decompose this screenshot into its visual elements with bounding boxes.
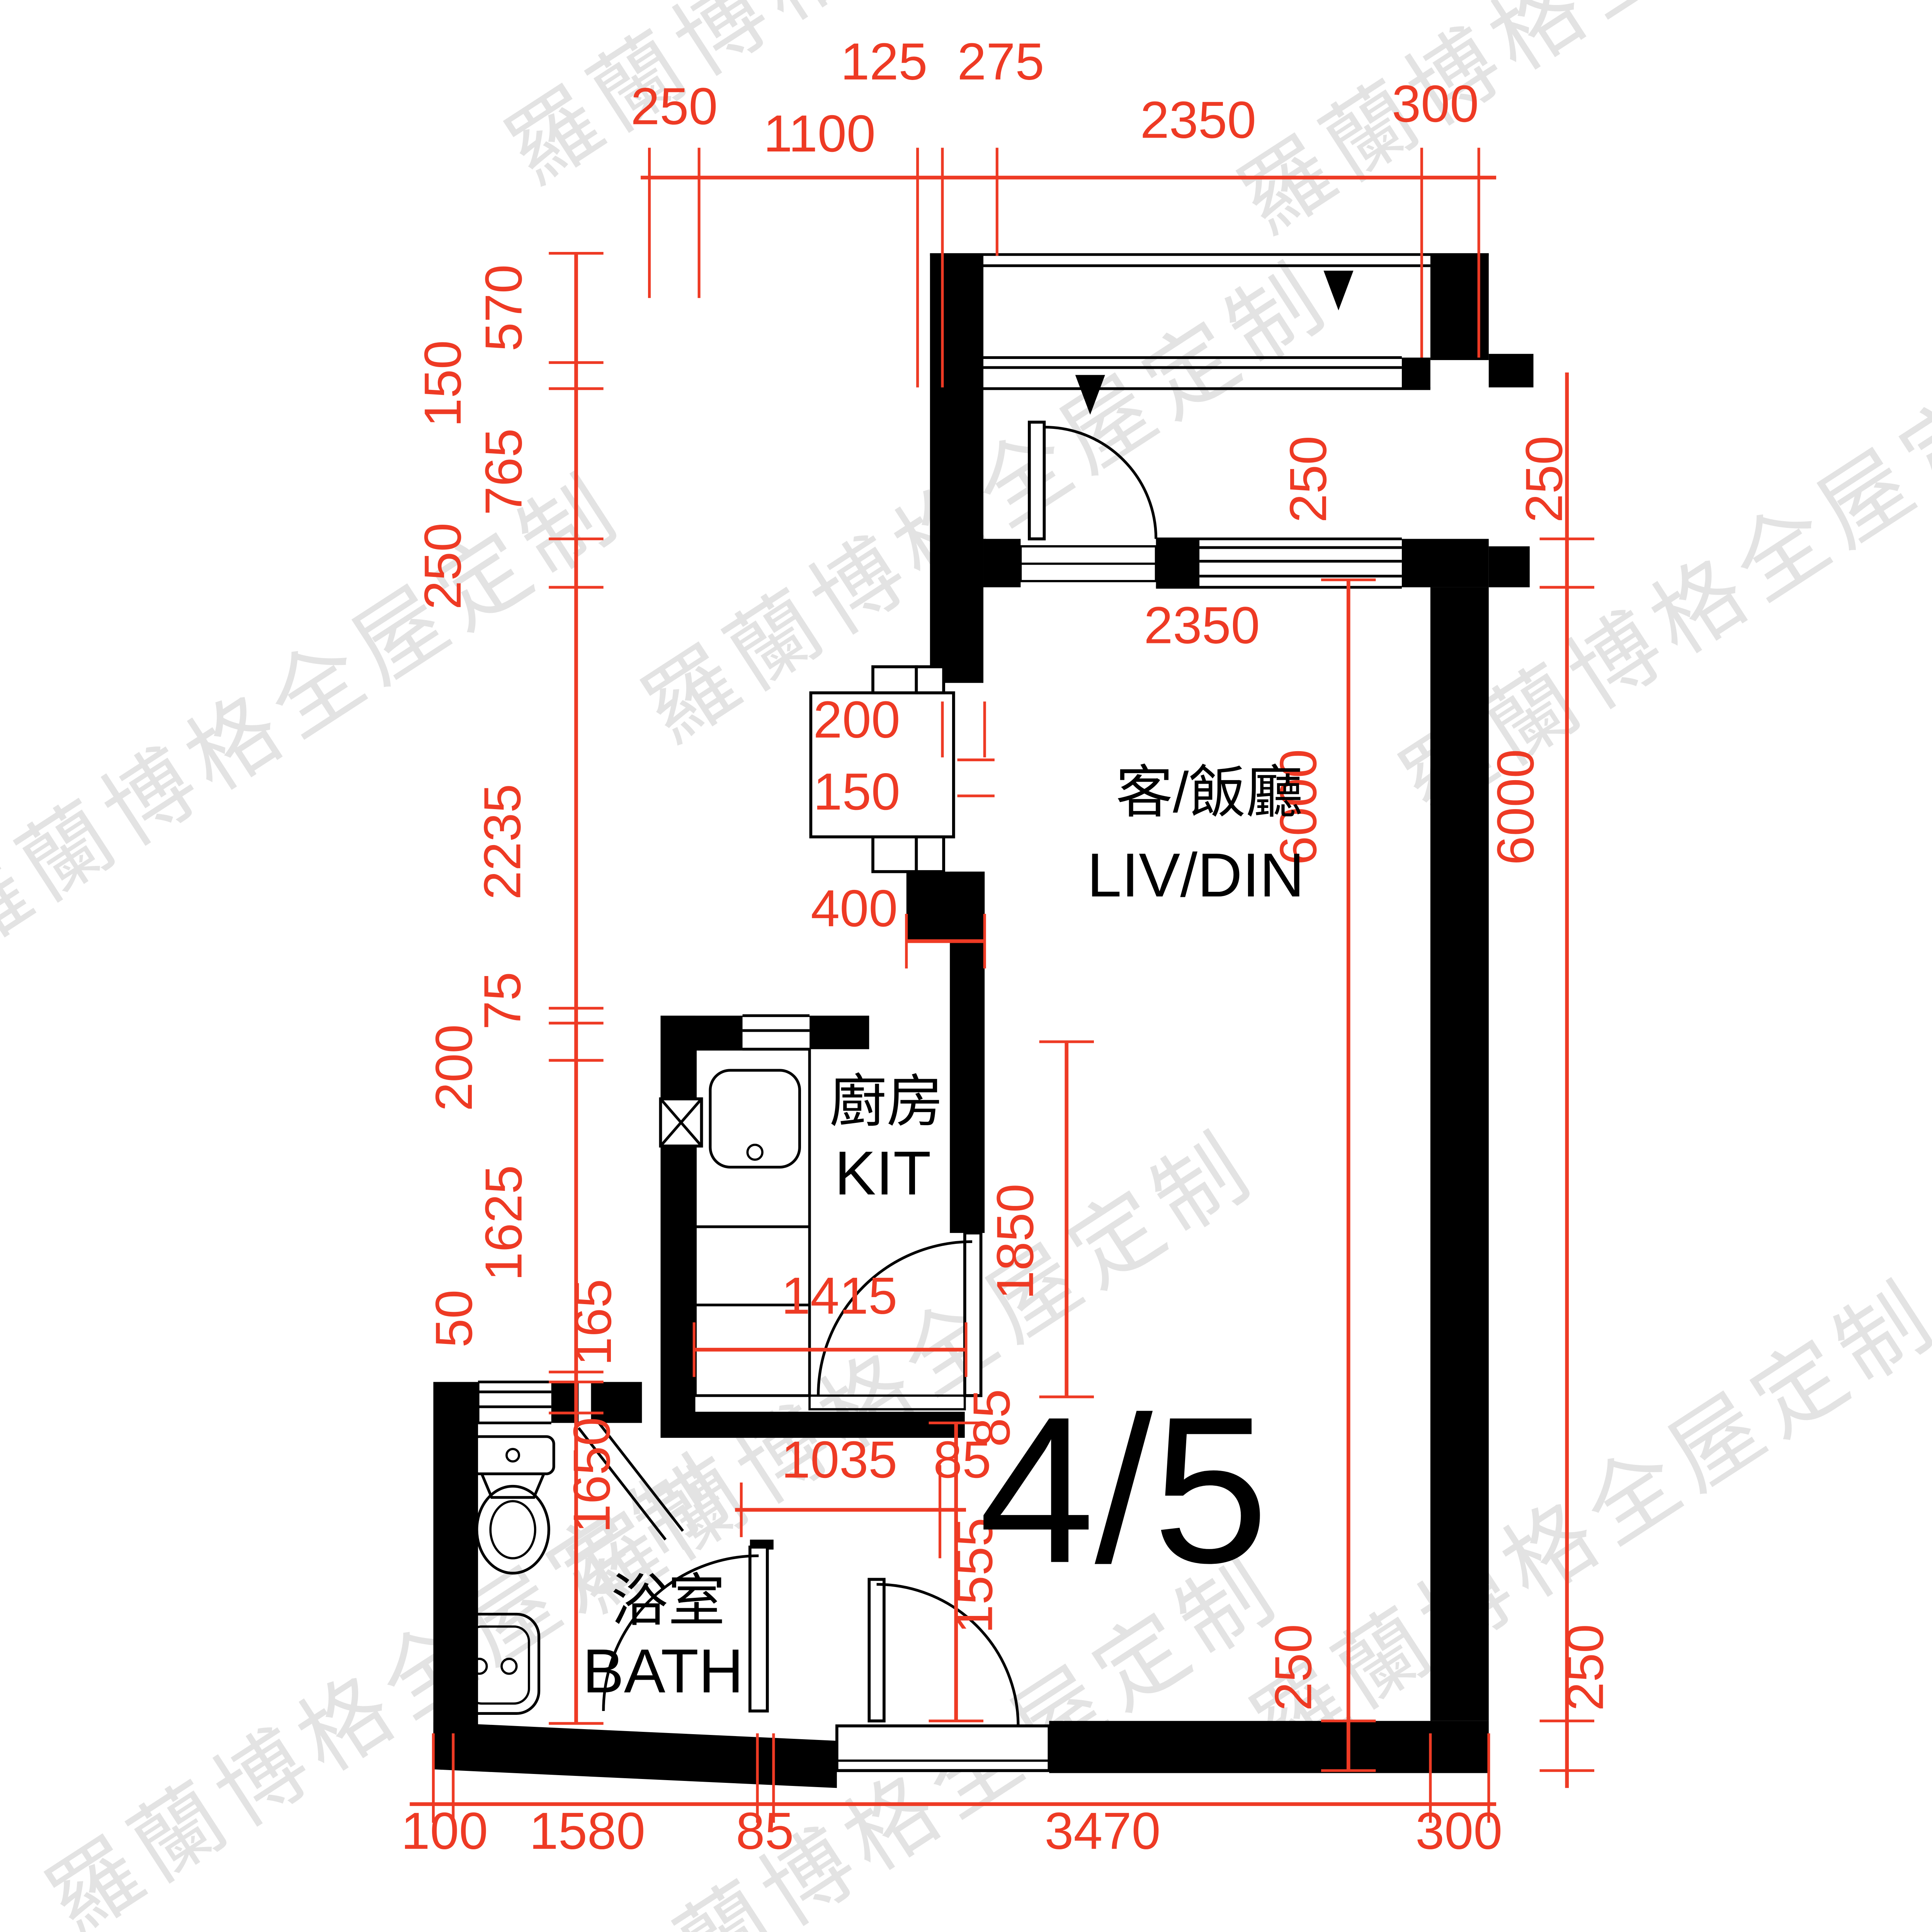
door-leaf: [1029, 422, 1044, 539]
dim-label-right: 250: [1556, 1624, 1614, 1711]
dim-label-left: 165: [564, 1279, 622, 1366]
wall-kitchen-top-left: [661, 1016, 743, 1049]
wall-slab-block: [1402, 357, 1430, 388]
wall-right: [1430, 587, 1489, 1721]
wall-band-right-nib: [1489, 546, 1530, 587]
entrance-door: [837, 1579, 1049, 1770]
door-leaf: [750, 1547, 767, 1711]
dim-label-right: 6000: [1486, 749, 1545, 865]
wall-bottom-right: [1049, 1721, 1489, 1773]
dim-label-top: 125: [840, 32, 927, 91]
dim-label-left: 50: [425, 1290, 483, 1348]
dim-label-bottom: 1580: [529, 1802, 645, 1860]
floor-plan: 羅蘭博格全屋定制 羅蘭博格全屋定制 羅蘭博格全屋定制 羅蘭博格全屋定制 羅蘭博格…: [0, 0, 1932, 1932]
dim-label-left: 75: [473, 972, 531, 1030]
kitchen-counter: [695, 1049, 810, 1396]
dim-label-top: 275: [957, 32, 1044, 91]
watermark: 羅蘭博格全屋定制: [0, 456, 640, 972]
wall-bottom-bath: [433, 1722, 837, 1788]
ac-platform-ledge: [873, 667, 916, 693]
dim-label-kitchen-height: 1850: [986, 1184, 1044, 1299]
kitchen-sink: [710, 1070, 799, 1167]
toilet-tank: [472, 1437, 554, 1474]
dim-label-ac-width: 200: [813, 690, 900, 749]
door-sill: [837, 1726, 1049, 1771]
dim-label-right: 250: [1515, 436, 1573, 523]
door-leaf: [869, 1579, 884, 1721]
room-label-kitchen-zh: 廚房: [830, 1070, 944, 1134]
dim-label-left: 570: [474, 264, 533, 351]
wall-band-left-pier: [983, 539, 1020, 587]
room-label-kitchen-en: KIT: [835, 1139, 931, 1208]
dim-label-hall-width: 1035: [781, 1430, 897, 1489]
dim-label-top: 250: [631, 77, 718, 135]
room-label-bath-en: BATH: [583, 1637, 744, 1706]
dim-label-left: 250: [413, 523, 472, 610]
dim-label-left: 200: [425, 1024, 483, 1111]
dim-label-bottom: 85: [736, 1802, 794, 1860]
dim-label-living-width: 2350: [1144, 596, 1260, 655]
dim-label-bottom: 300: [1415, 1802, 1502, 1860]
wall-band-mid-pillar: [1156, 539, 1199, 587]
room-label-living-zh: 客/飯廳: [1116, 761, 1303, 825]
wall-kitchen-left: [661, 1016, 696, 1413]
watermark: 羅蘭博格全屋定制: [627, 245, 1347, 761]
dim-label-bottom: 100: [401, 1802, 488, 1860]
dim-label-left: 1650: [563, 1417, 621, 1533]
kitchen-sink-drain: [747, 1145, 762, 1160]
dim-label-left: 765: [474, 428, 533, 515]
bath-window-lines: [478, 1382, 551, 1423]
wall-right-nib-top: [1489, 354, 1534, 388]
wall-kitchen-right: [950, 872, 985, 1233]
dim-label-left: 1625: [474, 1165, 533, 1281]
dim-label-400: 400: [811, 879, 898, 937]
wall-balcony-left: [930, 253, 983, 683]
ac-platform-ledge: [873, 837, 916, 872]
toilet-button: [507, 1449, 519, 1461]
ac-platform-ledge: [916, 667, 944, 693]
dim-label-left: 150: [413, 340, 472, 427]
dim-label-bottom: 3470: [1044, 1802, 1160, 1860]
dim-label-right: 250: [1279, 436, 1337, 523]
room-label-bath-zh: 浴室: [611, 1569, 725, 1633]
dim-label-ac-height: 150: [813, 762, 900, 821]
wall-band-right-block: [1402, 539, 1489, 587]
dim-label-top: 1100: [764, 104, 876, 163]
dim-label-right: 250: [1264, 1624, 1322, 1711]
room-label-living-en: LIV/DIN: [1087, 841, 1304, 910]
kitchen-window-lines: [743, 1016, 810, 1049]
dim-label-left: 2235: [473, 784, 531, 900]
unit-number: 4/5: [979, 1373, 1269, 1606]
watermark: 羅蘭博格全屋定制: [490, 0, 1211, 202]
dim-label-kitchen-width: 1415: [781, 1267, 897, 1325]
dim-chain-right-inner: [1321, 580, 1376, 1771]
ac-platform-ledge: [916, 837, 944, 872]
toilet-bowl-inner: [490, 1501, 535, 1558]
dim-label-top: 300: [1392, 75, 1479, 133]
wall-kitchen-top-right: [810, 1016, 869, 1049]
watermark: 羅蘭博格全屋定制: [1223, 0, 1932, 252]
dim-label-top: 2350: [1140, 91, 1256, 149]
